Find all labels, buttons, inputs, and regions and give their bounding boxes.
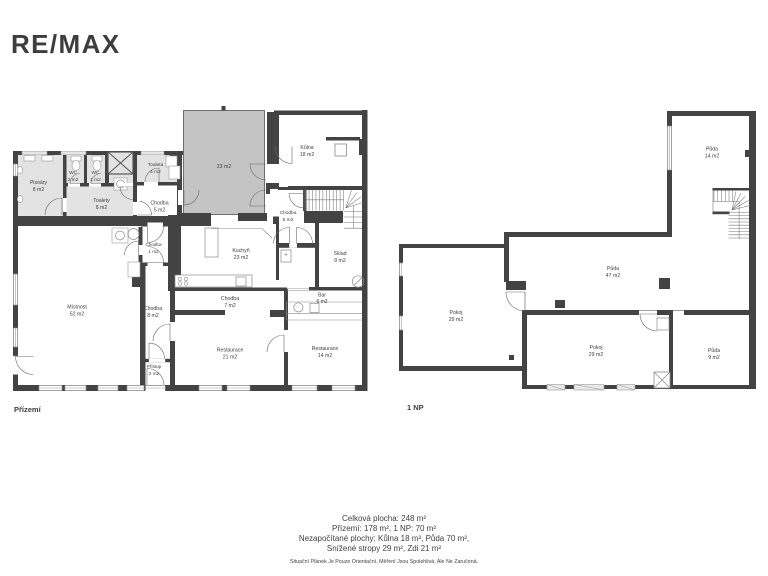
svg-text:Chodba: Chodba <box>144 306 162 312</box>
svg-text:Půda: Půda <box>607 265 619 272</box>
svg-text:Půda: Půda <box>706 146 718 153</box>
svg-text:1 m2: 1 m2 <box>90 177 101 183</box>
svg-text:18 m2: 18 m2 <box>300 152 315 158</box>
svg-text:5 m2: 5 m2 <box>283 217 294 223</box>
svg-text:9 m2: 9 m2 <box>708 355 720 361</box>
svg-text:WC: WC <box>92 170 101 176</box>
svg-text:29 m2: 29 m2 <box>449 317 464 323</box>
svg-text:Pokoj: Pokoj <box>590 345 603 351</box>
svg-text:Pokoj: Pokoj <box>450 310 463 316</box>
svg-text:Chodba: Chodba <box>145 242 162 247</box>
svg-text:5 m2: 5 m2 <box>154 208 166 214</box>
svg-text:1 m2: 1 m2 <box>148 249 159 254</box>
svg-text:Restaurace: Restaurace <box>217 348 244 354</box>
svg-text:6 m2: 6 m2 <box>316 299 327 305</box>
svg-text:Pisoáry: Pisoáry <box>30 180 48 186</box>
svg-text:Kuchyň: Kuchyň <box>232 248 249 254</box>
svg-text:Chodba: Chodba <box>221 296 239 302</box>
svg-text:14 m2: 14 m2 <box>705 154 720 160</box>
svg-text:2 m2: 2 m2 <box>149 371 160 376</box>
svg-text:8 m2: 8 m2 <box>147 313 159 319</box>
svg-text:Sklad: Sklad <box>334 251 347 257</box>
svg-text:23 m2: 23 m2 <box>234 255 249 261</box>
svg-text:52 m2: 52 m2 <box>70 312 85 318</box>
svg-text:29 m2: 29 m2 <box>589 352 604 358</box>
svg-text:Chodba: Chodba <box>280 210 297 216</box>
svg-text:2 m2: 2 m2 <box>68 177 79 183</box>
svg-text:Bar: Bar <box>318 293 326 299</box>
svg-text:21 m2: 21 m2 <box>223 355 238 361</box>
svg-text:Toaleta: Toaleta <box>148 162 164 168</box>
svg-text:8 m2: 8 m2 <box>334 258 346 264</box>
svg-text:47 m2: 47 m2 <box>606 273 621 279</box>
svg-text:Kůlna: Kůlna <box>300 144 313 151</box>
svg-text:Přístup: Přístup <box>147 364 162 369</box>
svg-text:7 m2: 7 m2 <box>224 303 236 309</box>
svg-text:Toalety: Toalety <box>93 198 110 204</box>
svg-text:8 m2: 8 m2 <box>96 205 108 211</box>
svg-text:4 m2: 4 m2 <box>150 169 161 175</box>
svg-text:14 m2: 14 m2 <box>318 353 333 359</box>
svg-text:Půda: Půda <box>708 347 720 354</box>
svg-text:8 m2: 8 m2 <box>33 187 45 193</box>
svg-text:Chodba: Chodba <box>150 201 168 207</box>
svg-text:Místnost: Místnost <box>67 305 87 311</box>
svg-text:Restaurace: Restaurace <box>312 346 339 352</box>
svg-text:WC: WC <box>69 170 78 176</box>
svg-text:23 m2: 23 m2 <box>217 164 232 170</box>
